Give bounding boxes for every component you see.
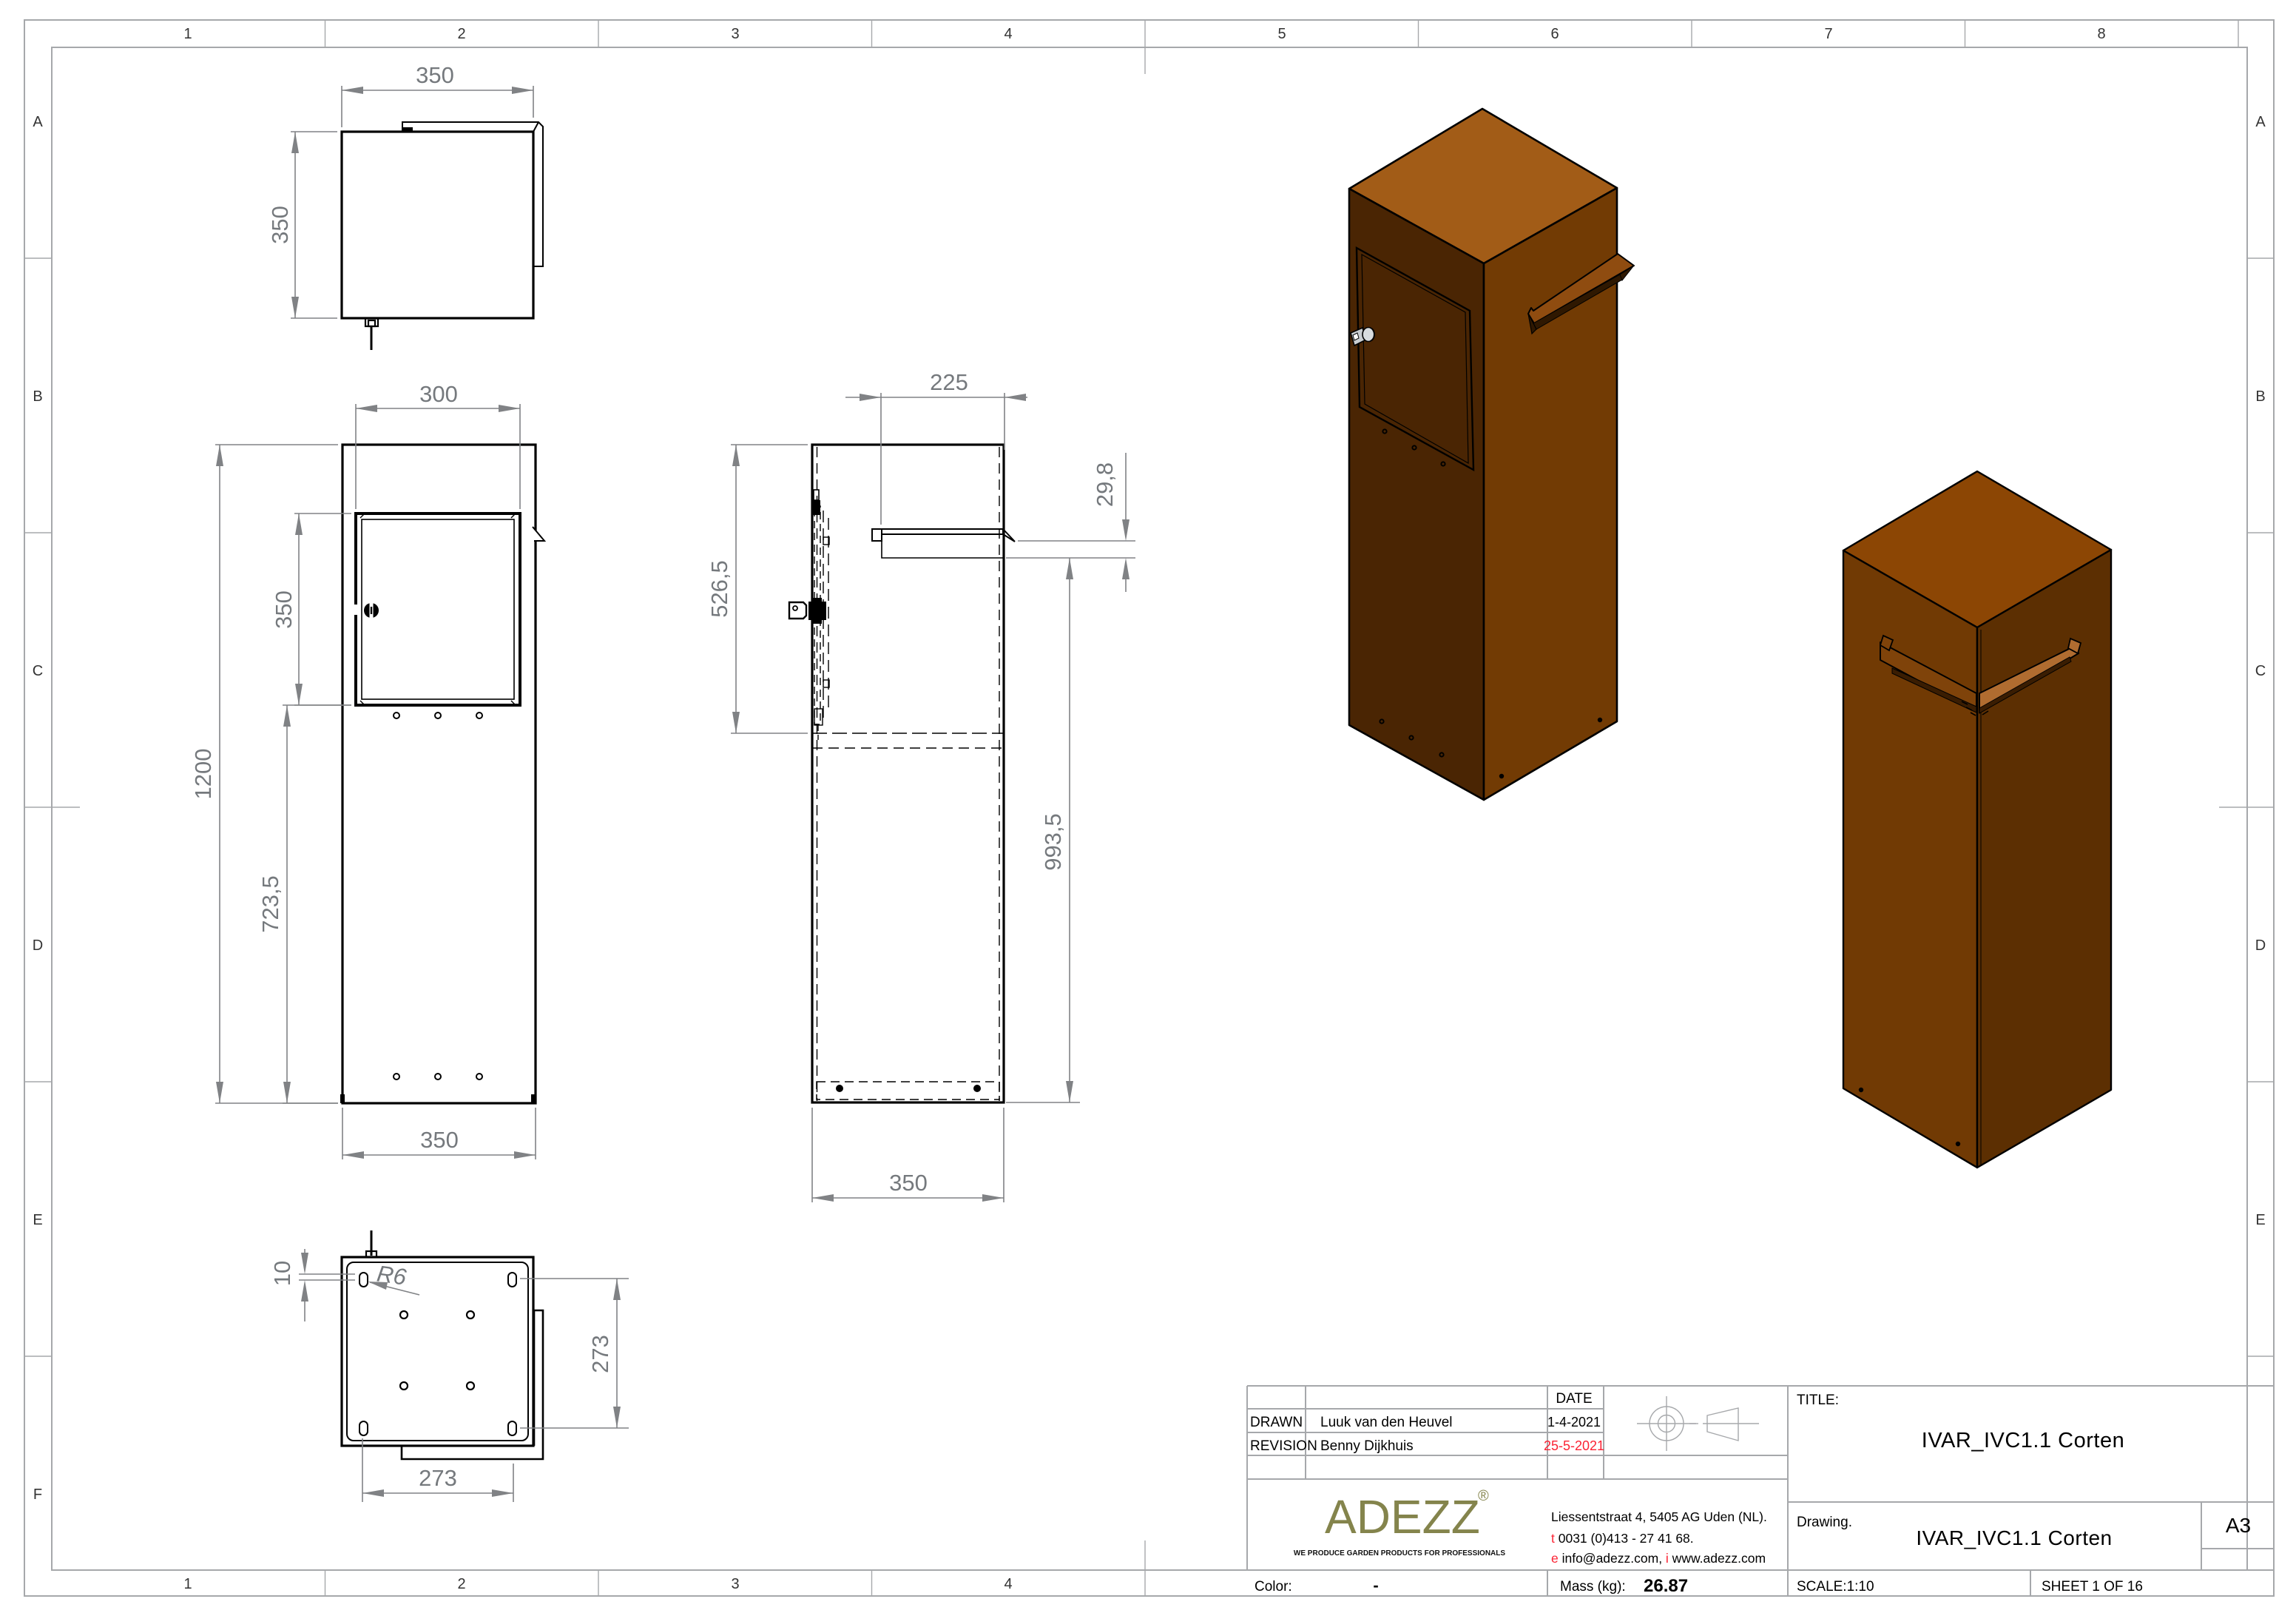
svg-text:1: 1 [183,26,192,42]
svg-text:2: 2 [457,26,465,42]
svg-text:Benny Dijkhuis: Benny Dijkhuis [1320,1438,1414,1454]
svg-text:IVAR_IVC1.1 Corten: IVAR_IVC1.1 Corten [1922,1429,2124,1452]
svg-text:DRAWN: DRAWN [1250,1415,1303,1430]
svg-text:Liessentstraat 4, 5405 AG Uden: Liessentstraat 4, 5405 AG Uden (NL). [1551,1509,1767,1524]
svg-text:C: C [2255,663,2266,679]
svg-text:7: 7 [1824,26,1832,42]
svg-text:350: 350 [416,62,454,88]
svg-text:4: 4 [1004,1576,1012,1592]
svg-text:A: A [2255,114,2266,130]
svg-text:B: B [33,388,42,405]
svg-text:29,8: 29,8 [1092,462,1118,507]
svg-text:8: 8 [2097,26,2105,42]
svg-text:t 0031 (0)413 - 27 41 68.: t 0031 (0)413 - 27 41 68. [1551,1531,1694,1546]
svg-text:Luuk van den Heuvel: Luuk van den Heuvel [1320,1415,1453,1430]
svg-text:IVAR_IVC1.1 Corten: IVAR_IVC1.1 Corten [1916,1526,2112,1549]
svg-text:D: D [2255,937,2266,954]
svg-text:DATE: DATE [1556,1391,1592,1407]
svg-text:1-4-2021: 1-4-2021 [1547,1415,1601,1430]
svg-text:350: 350 [889,1170,928,1196]
svg-text:A: A [33,114,43,130]
svg-text:26.87: 26.87 [1644,1576,1688,1596]
svg-text:REVISION: REVISION [1250,1438,1317,1454]
svg-text:R6: R6 [375,1261,408,1290]
svg-text:10: 10 [269,1261,295,1286]
svg-text:225: 225 [930,369,968,395]
svg-text:350: 350 [267,206,293,244]
svg-text:E: E [33,1212,42,1228]
svg-text:4: 4 [1004,26,1012,42]
svg-text:C: C [33,663,43,679]
svg-text:350: 350 [420,1127,459,1153]
svg-text:-: - [1373,1576,1378,1595]
svg-text:5: 5 [1277,26,1286,42]
svg-text:Color:: Color: [1255,1579,1292,1595]
svg-text:WE PRODUCE GARDEN PRODUCTS FOR: WE PRODUCE GARDEN PRODUCTS FOR PROFESSIO… [1294,1549,1505,1558]
svg-text:ADEZZ: ADEZZ [1325,1490,1480,1543]
svg-text:Drawing.: Drawing. [1797,1515,1852,1530]
svg-text:1: 1 [183,1576,192,1592]
svg-text:526,5: 526,5 [706,560,732,618]
svg-text:273: 273 [419,1465,457,1491]
svg-text:350: 350 [271,590,297,629]
svg-text:6: 6 [1550,26,1559,42]
svg-text:e info@adezz.com, i www.adezz.: e info@adezz.com, i www.adezz.com [1551,1551,1766,1566]
svg-text:273: 273 [587,1335,613,1373]
svg-text:300: 300 [419,381,458,407]
svg-text:993,5: 993,5 [1040,813,1066,871]
svg-text:SHEET 1 OF 16: SHEET 1 OF 16 [2042,1579,2143,1595]
svg-text:Mass (kg):: Mass (kg): [1560,1579,1626,1595]
svg-text:25-5-2021: 25-5-2021 [1544,1438,1604,1453]
svg-text:A3: A3 [2226,1514,2251,1537]
svg-text:3: 3 [731,1576,739,1592]
svg-text:B: B [2255,388,2265,405]
svg-text:TITLE:: TITLE: [1797,1393,1839,1408]
svg-text:2: 2 [457,1576,465,1592]
svg-text:723,5: 723,5 [257,875,283,933]
svg-text:3: 3 [731,26,739,42]
svg-text:1200: 1200 [190,749,216,800]
svg-text:SCALE:1:10: SCALE:1:10 [1797,1579,1874,1595]
svg-text:®: ® [1478,1488,1489,1504]
svg-text:F: F [33,1486,42,1503]
svg-text:D: D [33,937,43,954]
svg-text:E: E [2255,1212,2265,1228]
